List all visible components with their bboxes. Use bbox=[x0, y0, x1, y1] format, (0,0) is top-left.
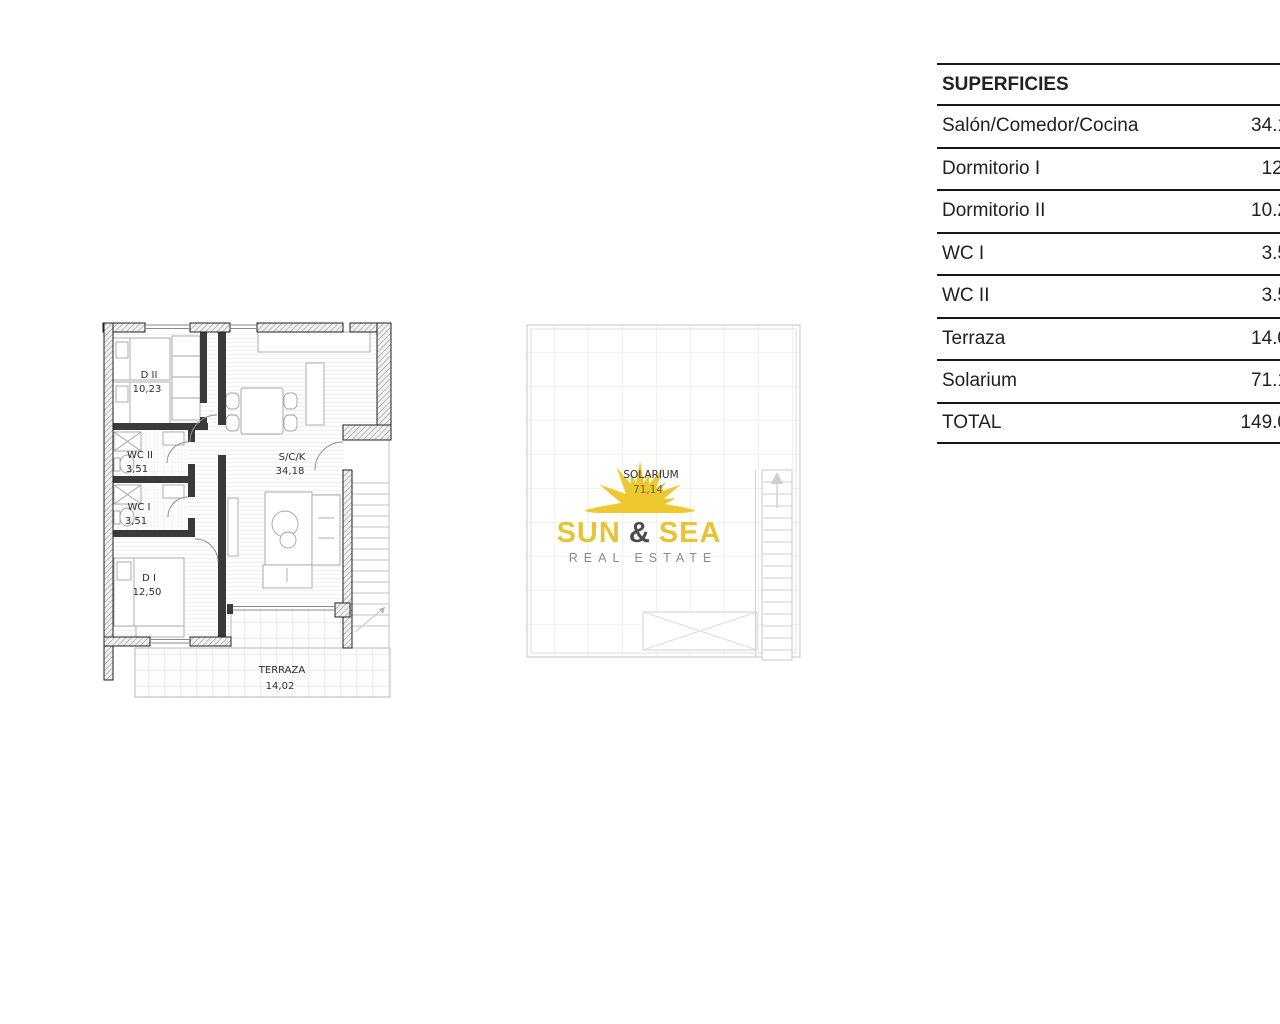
brand-logo: SUN&SEA REAL ESTATE bbox=[557, 517, 722, 565]
table-row: WC I 3.5 bbox=[937, 232, 1280, 275]
room-area-wc1: 3,51 bbox=[125, 516, 147, 527]
row-label: Salón/Comedor/Cocina bbox=[942, 115, 1138, 137]
row-value: 3.5 bbox=[1262, 243, 1280, 265]
row-label: Dormitorio II bbox=[942, 200, 1045, 222]
svg-text:SUN&SEA: SUN&SEA bbox=[557, 517, 722, 549]
row-label: Dormitorio I bbox=[942, 158, 1040, 180]
logo-ampersand: & bbox=[629, 517, 651, 549]
room-label-sck: S/C/K bbox=[279, 452, 306, 463]
logo-word-sun: SUN bbox=[557, 517, 621, 549]
room-label-terraza: TERRAZA bbox=[258, 665, 306, 676]
floor-plan-apartment: D II 10,23 WC II 3,51 WC I 3,51 D I 12,5… bbox=[100, 318, 400, 704]
row-label: Terraza bbox=[942, 328, 1005, 350]
logo-word-sea: SEA bbox=[659, 517, 722, 549]
table-row: WC II 3.5 bbox=[937, 274, 1280, 317]
row-label: WC I bbox=[942, 243, 984, 265]
room-area-d1: 12,50 bbox=[133, 587, 162, 598]
row-value: 71.1 bbox=[1251, 370, 1280, 392]
row-label: WC II bbox=[942, 285, 990, 307]
row-value: 14.0 bbox=[1251, 328, 1280, 350]
room-area-wc2: 3,51 bbox=[126, 464, 148, 475]
table-header-label: SUPERFICIES bbox=[942, 74, 1069, 96]
row-label: TOTAL bbox=[942, 412, 1001, 434]
room-label-wc1: WC I bbox=[128, 502, 151, 513]
table-row: Solarium 71.1 bbox=[937, 359, 1280, 402]
exterior-stairs bbox=[352, 438, 391, 648]
row-label: Solarium bbox=[942, 370, 1017, 392]
floor-plan-solarium: SOLARIUM 71,14 SUN&SEA REAL ESTATE bbox=[520, 318, 820, 670]
room-area-d2: 10,23 bbox=[133, 384, 162, 395]
table-row: Dormitorio II 10.2 bbox=[937, 189, 1280, 232]
room-label-solarium: SOLARIUM bbox=[623, 469, 678, 481]
row-value: 34.1 bbox=[1251, 115, 1280, 137]
room-area-sck: 34,18 bbox=[276, 466, 305, 477]
table-row-total: TOTAL 149.0 bbox=[937, 402, 1280, 445]
room-area-terraza: 14,02 bbox=[266, 681, 295, 692]
superficies-table: SUPERFICIES Salón/Comedor/Cocina 34.1 Do… bbox=[937, 63, 1280, 444]
row-value: 12. bbox=[1262, 158, 1280, 180]
row-value: 10.2 bbox=[1251, 200, 1280, 222]
room-area-solarium: 71,14 bbox=[633, 484, 663, 496]
row-value: 3.5 bbox=[1262, 285, 1280, 307]
skylight-void bbox=[643, 612, 757, 650]
table-row: Salón/Comedor/Cocina 34.1 bbox=[937, 104, 1280, 147]
room-label-d2: D II bbox=[141, 370, 158, 381]
table-row: Terraza 14.0 bbox=[937, 317, 1280, 360]
logo-subtitle: REAL ESTATE bbox=[569, 551, 717, 565]
table-header-row: SUPERFICIES bbox=[937, 63, 1280, 104]
table-row: Dormitorio I 12. bbox=[937, 147, 1280, 190]
row-value: 149.0 bbox=[1240, 412, 1280, 434]
room-label-wc2: WC II bbox=[127, 450, 153, 461]
room-label-d1: D I bbox=[142, 573, 156, 584]
